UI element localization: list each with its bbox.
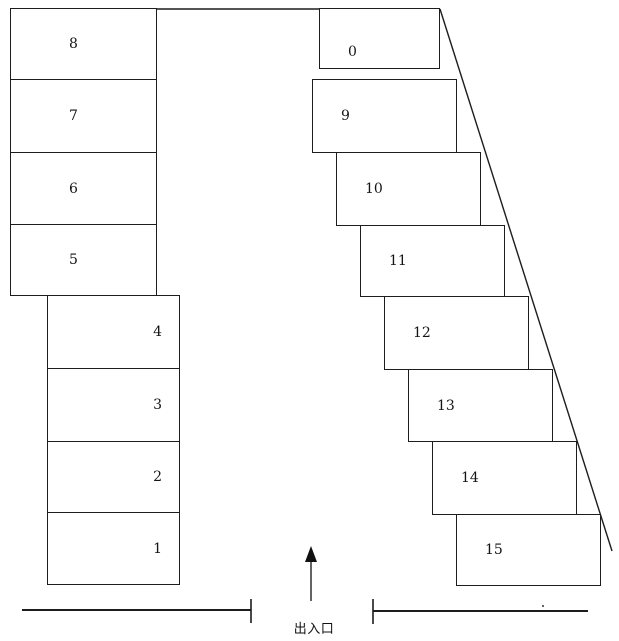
- parking-space-9: 9: [312, 79, 457, 153]
- parking-space-7: 7: [10, 79, 157, 153]
- parking-space-12: 12: [384, 296, 529, 370]
- space-number: 7: [69, 109, 78, 123]
- space-number: 14: [461, 471, 479, 485]
- space-number: 6: [69, 182, 78, 196]
- dimension-line-left: [22, 599, 251, 623]
- space-number: 0: [348, 45, 357, 59]
- parking-space-14: 14: [432, 441, 577, 515]
- space-number: 11: [389, 254, 407, 268]
- parking-space-11: 11: [360, 225, 505, 297]
- parking-space-2: 2: [47, 441, 180, 513]
- space-number: 8: [69, 37, 78, 51]
- up-arrow-icon: [305, 546, 317, 601]
- parking-space-8: 8: [10, 8, 157, 80]
- space-number: 13: [437, 399, 455, 413]
- parking-space-1: 1: [47, 512, 180, 585]
- parking-space-5: 5: [10, 224, 157, 296]
- space-number: 15: [485, 543, 503, 557]
- parking-space-0: 0: [319, 8, 440, 69]
- space-number: 10: [365, 182, 383, 196]
- parking-diagram: 8 7 6 5 4 3 2 1 0 9 10 11 12 13 14 15: [0, 0, 619, 641]
- parking-space-10: 10: [336, 152, 481, 226]
- parking-space-13: 13: [408, 369, 553, 442]
- space-number: 5: [69, 253, 78, 267]
- parking-space-6: 6: [10, 152, 157, 225]
- parking-space-15: 15: [456, 514, 601, 586]
- dimension-line-right: [373, 599, 588, 624]
- space-number: 12: [413, 326, 431, 340]
- space-number: 9: [341, 109, 350, 123]
- entrance-label: 出入口: [287, 618, 341, 637]
- space-number: 2: [153, 470, 162, 484]
- parking-space-4: 4: [47, 295, 180, 369]
- space-number: 3: [153, 398, 162, 412]
- parking-space-3: 3: [47, 368, 180, 442]
- space-number: 4: [153, 325, 162, 339]
- space-number: 1: [153, 542, 162, 556]
